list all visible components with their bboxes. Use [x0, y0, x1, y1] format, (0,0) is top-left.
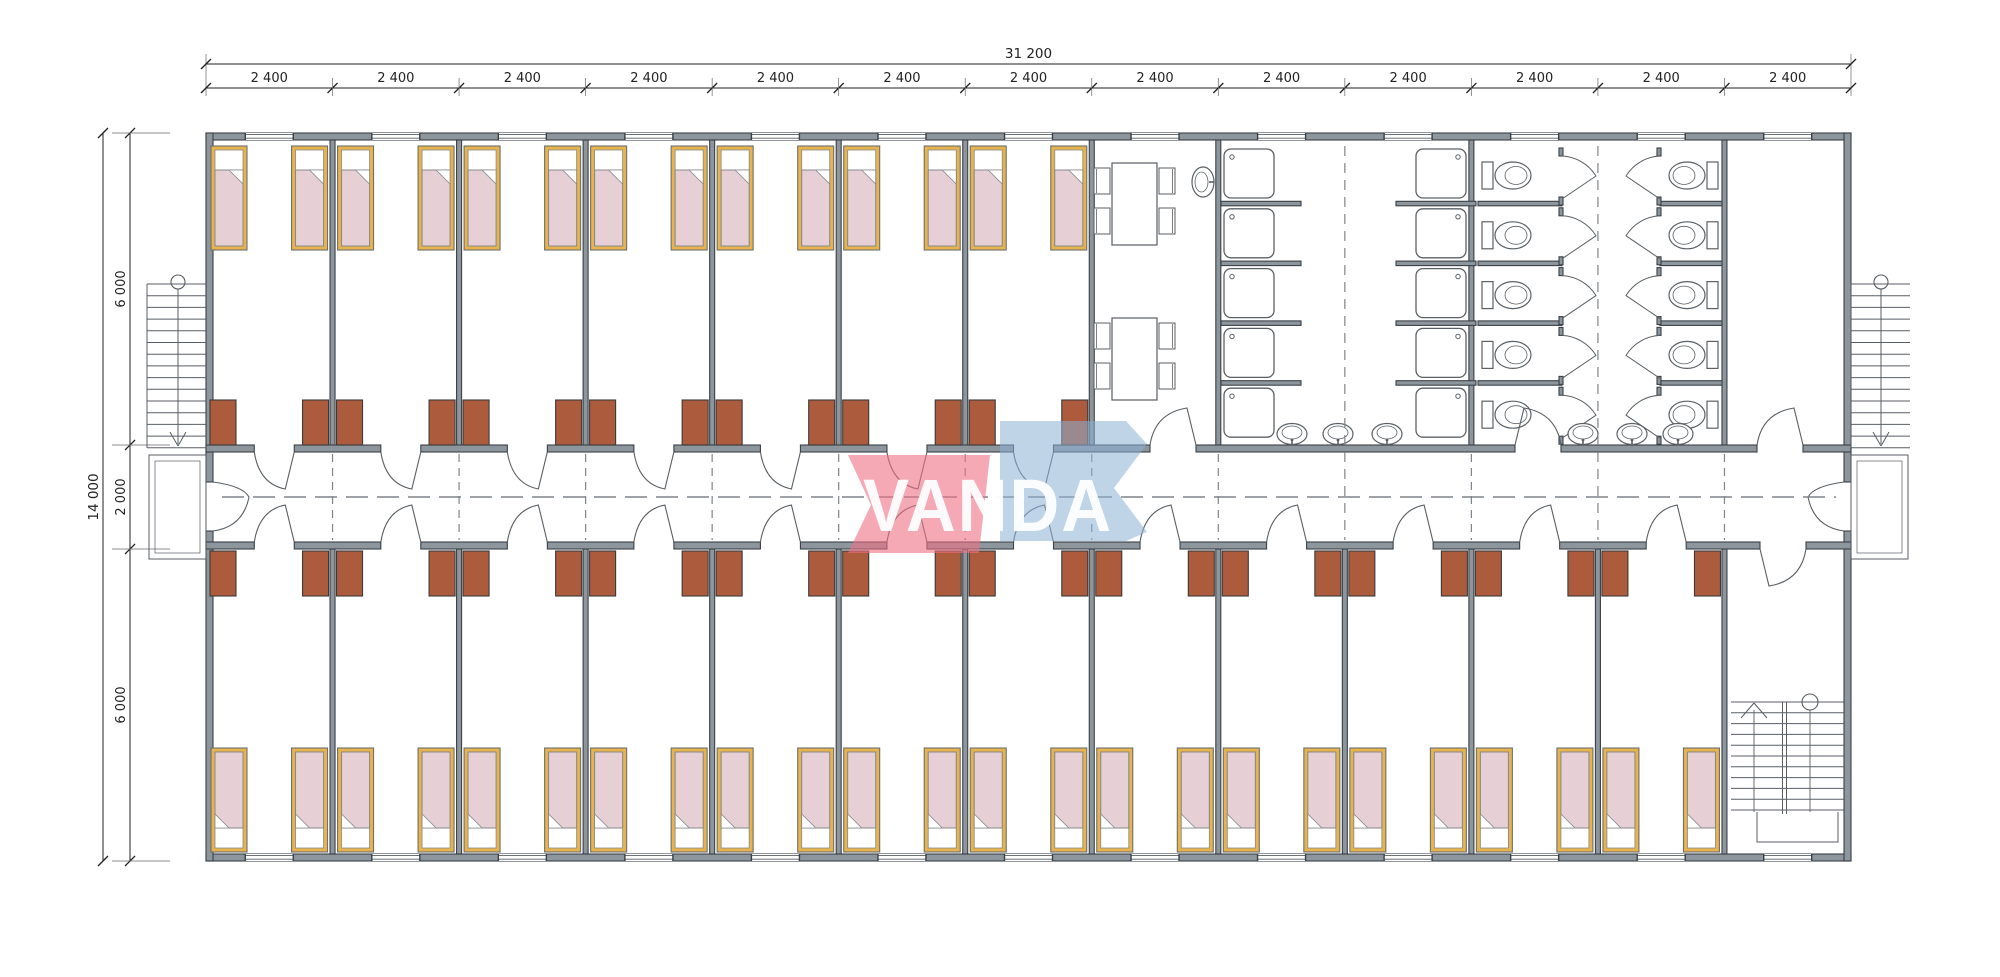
exterior-wall-right — [1844, 133, 1851, 482]
door-swing-exit-left — [213, 482, 249, 497]
window-top — [1384, 133, 1432, 140]
window-top — [1005, 133, 1053, 140]
door-swing-exit-right — [1808, 482, 1844, 497]
dimension-label-bay: 2 400 — [757, 71, 794, 86]
shower-stall — [1416, 149, 1466, 198]
dimension-label-bay: 2 400 — [1010, 71, 1047, 86]
bed — [545, 748, 581, 852]
door-swing-bedroom-top — [254, 452, 294, 489]
dimension-label-segment: 6 000 — [114, 270, 129, 307]
window-top — [1511, 133, 1559, 140]
drawing-canvas: 31 2002 4002 4002 4002 4002 4002 4002 40… — [0, 0, 2000, 977]
dimension-label-bay: 2 400 — [1390, 71, 1427, 86]
window-top — [1258, 133, 1306, 140]
door-swing-bedroom-top — [760, 452, 800, 489]
logo-watermark: VANDA — [848, 421, 1147, 553]
door-jamb — [1657, 148, 1661, 156]
corridor-wall-bottom — [1806, 542, 1851, 549]
toilet-tank — [1482, 162, 1493, 189]
wardrobe — [1222, 551, 1248, 596]
corridor-wall-top — [800, 445, 887, 452]
partition-wall — [1469, 140, 1474, 445]
wardrobe — [1188, 551, 1214, 596]
bed-blanket — [422, 170, 450, 246]
wardrobe — [463, 551, 489, 596]
window-bottom — [1511, 854, 1559, 861]
shower-stall — [1416, 388, 1466, 437]
bed — [844, 146, 880, 250]
stair-arrow — [1741, 703, 1754, 718]
bed-blanket — [1480, 752, 1508, 828]
toilet-door-swing — [1626, 335, 1660, 378]
stair-arrow — [1881, 432, 1889, 446]
door-swing-bedroom-bottom — [1520, 505, 1560, 542]
window-bottom — [498, 854, 546, 861]
toilet-tank — [1707, 401, 1718, 428]
wardrobe — [1568, 551, 1594, 596]
window-bottom — [1258, 854, 1306, 861]
window-top — [751, 133, 799, 140]
wash-basin-group — [1323, 424, 1353, 446]
wardrobe — [809, 400, 835, 445]
stair-arrow — [178, 432, 186, 446]
door-swing-bedroom-bottom — [381, 505, 421, 542]
dimension-label-segment: 6 000 — [114, 686, 129, 723]
bed — [671, 146, 707, 250]
bed-blanket — [721, 170, 749, 246]
wardrobe — [1441, 551, 1467, 596]
external-stair-left — [147, 275, 206, 448]
shower-divider — [1221, 201, 1301, 206]
partition-wall — [1342, 549, 1347, 854]
partition-wall — [963, 549, 968, 854]
shower-stall — [1224, 149, 1274, 198]
wardrobe — [556, 551, 582, 596]
toilet-door-swing — [1626, 276, 1660, 319]
dining-table — [1112, 318, 1157, 400]
partition-wall — [1722, 549, 1727, 854]
partition-wall — [710, 549, 715, 854]
door-swing-bedroom-bottom — [254, 505, 294, 542]
bed — [1476, 748, 1512, 852]
window-top — [498, 133, 546, 140]
wardrobe — [843, 551, 869, 596]
wardrobe — [337, 400, 363, 445]
wardrobe — [809, 551, 835, 596]
external-stair-right — [1851, 275, 1910, 448]
bed-blanket — [675, 752, 703, 828]
bed-blanket — [1055, 170, 1083, 246]
door-jamb — [1657, 268, 1661, 276]
window-bottom — [625, 854, 673, 861]
bed-blanket — [1101, 752, 1129, 828]
bed — [717, 146, 753, 250]
wardrobe — [1602, 551, 1628, 596]
partition-wall — [1216, 549, 1221, 854]
corridor-wall-top — [294, 445, 381, 452]
toilet-bowl — [1495, 162, 1531, 189]
corridor-wall-top — [547, 445, 634, 452]
shower-stall — [1224, 269, 1274, 318]
toilet-stall-partition — [1478, 321, 1562, 326]
bed — [1177, 748, 1213, 852]
corridor-wall-bottom — [547, 542, 634, 549]
shower-stall — [1416, 209, 1466, 258]
partition-wall — [1469, 549, 1474, 854]
shower-divider — [1396, 381, 1476, 386]
shower-stall — [1416, 328, 1466, 377]
bed-blanket — [595, 170, 623, 246]
dimension-label-overall-top: 31 200 — [1005, 46, 1052, 62]
shower-stall — [1416, 269, 1466, 318]
wash-basin-group — [1568, 424, 1598, 446]
partition-wall — [583, 140, 588, 445]
partition-wall — [457, 140, 462, 445]
dimension-label-bay: 2 400 — [1136, 71, 1173, 86]
toilet-stall-partition — [1660, 321, 1722, 326]
corridor-wall-top — [1803, 445, 1851, 452]
door-swing-storage — [1757, 408, 1803, 445]
toilet-stall-partition — [1478, 201, 1562, 206]
wardrobe — [969, 400, 995, 445]
wardrobe — [556, 400, 582, 445]
toilet-bowl — [1495, 341, 1531, 368]
bed — [418, 748, 454, 852]
bed-blanket — [1227, 752, 1255, 828]
wardrobe — [429, 551, 455, 596]
window-bottom — [1637, 854, 1685, 861]
bed-blanket — [1354, 752, 1382, 828]
bed-blanket — [1561, 752, 1589, 828]
dimension-label-bay: 2 400 — [504, 71, 541, 86]
bed-blanket — [1434, 752, 1462, 828]
wash-basin-group — [1277, 424, 1307, 446]
door-swing-bedroom-top — [507, 452, 547, 489]
door-jamb — [1657, 387, 1661, 395]
door-swing-bedroom-bottom — [1267, 505, 1307, 542]
wash-basin-group — [1192, 167, 1214, 197]
stair-arrow — [1754, 703, 1767, 718]
door-swing-bedroom-bottom — [1140, 505, 1180, 542]
toilet-door-swing — [1562, 335, 1596, 378]
bed — [970, 748, 1006, 852]
wash-basin-group — [1663, 424, 1693, 446]
toilet-bowl — [1495, 222, 1531, 249]
dimension-label-bay: 2 400 — [1769, 71, 1806, 86]
corridor-wall-top — [674, 445, 761, 452]
bed-blanket — [342, 752, 370, 828]
bed — [1603, 748, 1639, 852]
corridor-wall-bottom — [1180, 542, 1267, 549]
bed — [798, 146, 834, 250]
bed-blanket — [848, 752, 876, 828]
bed-blanket — [675, 170, 703, 246]
shower-stall — [1224, 388, 1274, 437]
bed-blanket — [974, 752, 1002, 828]
bed — [1683, 748, 1719, 852]
bed — [844, 748, 880, 852]
toilet-bowl — [1669, 162, 1705, 189]
bed — [464, 146, 500, 250]
window-bottom — [1005, 854, 1053, 861]
door-swing-bedroom-bottom — [634, 505, 674, 542]
wardrobe — [716, 551, 742, 596]
wardrobe — [969, 551, 995, 596]
door-swing-bedroom-top — [381, 452, 421, 489]
partition-wall — [330, 140, 335, 445]
bed — [924, 146, 960, 250]
bed-blanket — [721, 752, 749, 828]
dimension-label-bay: 2 400 — [251, 71, 288, 86]
bed-blanket — [296, 752, 324, 828]
partition-wall — [1216, 140, 1221, 445]
bed — [292, 146, 328, 250]
wardrobe — [1062, 551, 1088, 596]
bed — [1223, 748, 1259, 852]
window-top — [1131, 133, 1179, 140]
toilet-stall-partition — [1660, 381, 1722, 386]
wardrobe — [682, 551, 708, 596]
bed-blanket — [1055, 752, 1083, 828]
corridor-wall-top — [1196, 445, 1515, 452]
toilet-door-swing — [1562, 216, 1596, 259]
stair-start-circle — [171, 275, 185, 289]
shower-divider — [1221, 381, 1301, 386]
toilet-bowl — [1495, 282, 1531, 309]
corridor-wall-top — [1561, 445, 1757, 452]
dimension-label-bay: 2 400 — [1516, 71, 1553, 86]
dimension-label-bay: 2 400 — [377, 71, 414, 86]
bed — [1557, 748, 1593, 852]
wardrobe — [463, 400, 489, 445]
bed — [545, 146, 581, 250]
wash-basin-group — [1617, 424, 1647, 446]
bed — [717, 748, 753, 852]
toilet-tank — [1482, 282, 1493, 309]
partition-wall — [1722, 140, 1727, 445]
bed-blanket — [802, 752, 830, 828]
entry-landing-inner — [155, 461, 200, 553]
door-swing-exit-left — [213, 497, 249, 531]
partition-wall — [330, 549, 335, 854]
toilet-stall-partition — [1478, 381, 1562, 386]
exterior-wall-right — [1844, 531, 1851, 861]
wardrobe — [1475, 551, 1501, 596]
bed — [798, 748, 834, 852]
bed — [1051, 146, 1087, 250]
door-jamb — [1559, 327, 1563, 335]
door-jamb — [1657, 327, 1661, 335]
corridor-wall-top — [421, 445, 508, 452]
wardrobe — [210, 551, 236, 596]
toilet-bowl — [1669, 222, 1705, 249]
bed — [671, 748, 707, 852]
window-top — [245, 133, 293, 140]
bed-blanket — [928, 170, 956, 246]
logo-text: VANDA — [863, 464, 1113, 547]
toilet-tank — [1707, 162, 1718, 189]
wardrobe — [210, 400, 236, 445]
bed — [338, 146, 374, 250]
door-swing-bedroom-bottom — [760, 505, 800, 542]
wardrobe — [429, 400, 455, 445]
shower-divider — [1396, 261, 1476, 266]
entry-landing-left — [149, 455, 206, 559]
bed — [591, 748, 627, 852]
basin-tap-dot — [1386, 439, 1389, 442]
wardrobe — [590, 551, 616, 596]
door-swing-exit-right — [1808, 497, 1844, 531]
corridor-wall-bottom — [206, 542, 254, 549]
toilet-tank — [1482, 222, 1493, 249]
shower-stall — [1224, 209, 1274, 258]
wardrobe — [1694, 551, 1720, 596]
toilet-tank — [1707, 222, 1718, 249]
window-bottom — [1384, 854, 1432, 861]
shower-divider — [1221, 321, 1301, 326]
toilet-tank — [1482, 341, 1493, 368]
partition-wall — [963, 140, 968, 445]
window-top — [1764, 133, 1812, 140]
door-jamb — [1559, 268, 1563, 276]
stair-return-outline — [1757, 812, 1838, 842]
window-bottom — [245, 854, 293, 861]
toilet-bowl — [1495, 401, 1531, 428]
bed — [211, 146, 247, 250]
wardrobe — [935, 400, 961, 445]
entry-landing-inner — [1857, 461, 1902, 553]
dimension-label-bay: 2 400 — [630, 71, 667, 86]
toilet-bowl — [1669, 282, 1705, 309]
stairs-layer — [147, 275, 1910, 842]
bed — [464, 748, 500, 852]
corridor-wall-top — [206, 445, 254, 452]
bed-blanket — [468, 170, 496, 246]
bed — [1350, 748, 1386, 852]
door-jamb — [1559, 387, 1563, 395]
corridor-wall-bottom — [674, 542, 761, 549]
wardrobe — [1349, 551, 1375, 596]
door-swing-bedroom-bottom — [507, 505, 547, 542]
wardrobe — [843, 400, 869, 445]
dimension-label-bay: 2 400 — [1263, 71, 1300, 86]
toilet-bowl — [1669, 341, 1705, 368]
window-bottom — [1764, 854, 1812, 861]
bed-blanket — [1308, 752, 1336, 828]
basin-tap-dot — [1291, 439, 1294, 442]
dining-table-group — [1094, 163, 1175, 245]
window-bottom — [1131, 854, 1179, 861]
wash-basin-group — [1372, 424, 1402, 446]
wardrobe — [1315, 551, 1341, 596]
wardrobe — [303, 551, 329, 596]
bed — [1097, 748, 1133, 852]
bed-blanket — [549, 752, 577, 828]
toilet-stall-partition — [1660, 261, 1722, 266]
bed — [211, 748, 247, 852]
wardrobe — [1096, 551, 1122, 596]
bed — [338, 748, 374, 852]
bed-blanket — [296, 170, 324, 246]
door-swing-stair-room — [1760, 549, 1806, 586]
toilet-tank — [1707, 282, 1718, 309]
dimension-label-bay: 2 400 — [883, 71, 920, 86]
toilet-door-swing — [1626, 216, 1660, 259]
basin-tap-dot — [1582, 439, 1585, 442]
basin-tap-dot — [1677, 439, 1680, 442]
window-top — [1637, 133, 1685, 140]
dining-table-group — [1094, 318, 1175, 400]
corridor-wall-bottom — [421, 542, 508, 549]
door-swing-bedroom-bottom — [1646, 505, 1686, 542]
bed — [1430, 748, 1466, 852]
bed — [970, 146, 1006, 250]
bed — [1304, 748, 1340, 852]
window-bottom — [878, 854, 926, 861]
bed — [418, 146, 454, 250]
dining-table — [1112, 163, 1157, 245]
door-swing-bedroom-top — [634, 452, 674, 489]
bed-blanket — [928, 752, 956, 828]
door-jamb — [1559, 148, 1563, 156]
partition-wall — [583, 549, 588, 854]
window-top — [878, 133, 926, 140]
bed-blanket — [1607, 752, 1635, 828]
wardrobe — [337, 551, 363, 596]
toilet-tank — [1707, 341, 1718, 368]
bed-blanket — [595, 752, 623, 828]
partition-wall — [1089, 549, 1094, 854]
bed-blanket — [342, 170, 370, 246]
bed-blanket — [549, 170, 577, 246]
toilet-stall-partition — [1660, 201, 1722, 206]
wardrobe — [682, 400, 708, 445]
partition-wall — [710, 140, 715, 445]
basin-tap-dot — [1631, 439, 1634, 442]
door-swing-bedroom-bottom — [1393, 505, 1433, 542]
stair-start-circle — [1874, 275, 1888, 289]
internal-stair — [1731, 694, 1844, 842]
shower-stall — [1224, 328, 1274, 377]
toilet-stall-partition — [1478, 261, 1562, 266]
wardrobe — [303, 400, 329, 445]
partition-wall — [836, 140, 841, 445]
dimension-label-bay: 2 400 — [1643, 71, 1680, 86]
window-bottom — [751, 854, 799, 861]
corridor-wall-bottom — [1433, 542, 1520, 549]
floor-plan: 31 2002 4002 4002 4002 4002 4002 4002 40… — [0, 0, 2000, 977]
bed-blanket — [848, 170, 876, 246]
stair-arrow — [1873, 432, 1881, 446]
entry-landing-right — [1851, 455, 1908, 559]
bed-blanket — [422, 752, 450, 828]
shower-divider — [1396, 321, 1476, 326]
corridor-wall-bottom — [1307, 542, 1394, 549]
shower-divider — [1221, 261, 1301, 266]
wardrobe — [935, 551, 961, 596]
dimension-label-overall-left: 14 000 — [86, 473, 102, 520]
door-swing-dining — [1150, 408, 1196, 445]
bed-blanket — [802, 170, 830, 246]
bed-blanket — [468, 752, 496, 828]
bed-blanket — [215, 170, 243, 246]
toilet-door-swing — [1562, 156, 1596, 199]
bed-blanket — [215, 752, 243, 828]
bed — [292, 748, 328, 852]
window-top — [372, 133, 420, 140]
door-jamb — [1657, 208, 1661, 216]
bed — [591, 146, 627, 250]
